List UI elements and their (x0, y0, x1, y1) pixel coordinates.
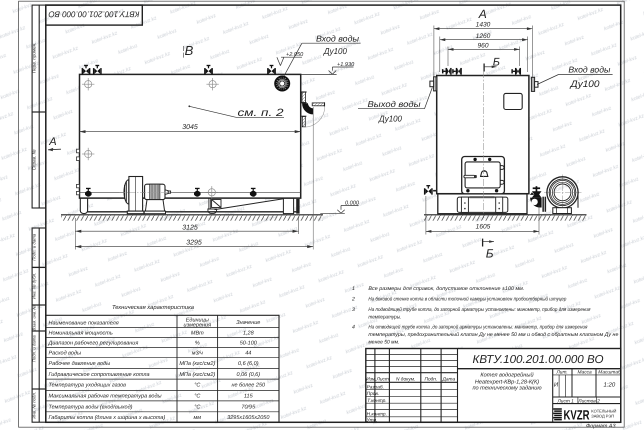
svg-text:На боковой стенке котла в обла: На боковой стенке котла в области топочн… (368, 297, 566, 303)
svg-text:Б: Б (486, 246, 494, 260)
svg-text:И: И (554, 382, 559, 389)
svg-text:В: В (185, 43, 194, 58)
svg-text:960: 960 (477, 43, 488, 50)
svg-text:Максимальная рабочая температу: Максимальная рабочая температура воды (49, 393, 162, 400)
svg-text:КВТУ.100.201.00.000 ВО: КВТУ.100.201.00.000 ВО (473, 354, 604, 366)
svg-text:3295: 3295 (186, 240, 202, 247)
svg-text:Подп. и дата: Подп. и дата (32, 233, 37, 261)
svg-text:0,6 (6,0): 0,6 (6,0) (238, 361, 259, 367)
svg-text:Масштаб: Масштаб (598, 370, 621, 376)
svg-text:КВТУ.100.201.00.000 ВО: КВТУ.100.201.00.000 ВО (48, 10, 140, 19)
svg-text:Формат А3: Формат А3 (586, 423, 616, 429)
svg-text:Лит.: Лит. (556, 370, 568, 376)
svg-text:На подводящей трубе котла, д: На подводящей трубе котла, до запорной а… (368, 307, 590, 313)
svg-text:KVZR: KVZR (564, 407, 590, 422)
svg-text:Масса: Масса (578, 370, 593, 376)
svg-text:Диапазон рабочего регулировани: Диапазон рабочего регулирования (48, 340, 139, 347)
svg-text:см. п. 2: см. п. 2 (238, 107, 284, 119)
svg-text:Разраб.: Разраб. (367, 384, 384, 390)
svg-text:°С: °С (194, 404, 200, 410)
svg-text:Подп. и дата: Подп. и дата (32, 335, 37, 363)
svg-text:Ду100: Ду100 (378, 113, 402, 123)
svg-text:Дата: Дата (442, 377, 456, 383)
svg-text:Все размеры для справок, допус: Все размеры для справок, допустимое откл… (368, 286, 524, 292)
svg-text:Н.контр.: Н.контр. (367, 412, 387, 418)
svg-text:На отводящей трубе котла ,до з: На отводящей трубе котла ,до запорной ар… (368, 325, 587, 331)
svg-text:°С: °С (194, 383, 200, 389)
svg-text:менее 50 мм.: менее 50 мм. (368, 339, 399, 345)
svg-text:температуры.: температуры. (368, 315, 401, 321)
svg-text:Габариты котла (длина х ширина: Габариты котла (длина х ширина х высота) (49, 414, 166, 421)
svg-text:Инв. № дубл.: Инв. № дубл. (32, 273, 37, 299)
svg-text:Ду100: Ду100 (569, 79, 600, 90)
svg-text:°С: °С (194, 394, 200, 400)
svg-text:3: 3 (352, 307, 355, 313)
svg-text:Вход воды: Вход воды (568, 65, 611, 75)
svg-text:Наименование показателя: Наименование показателя (49, 321, 119, 327)
svg-text:не более 250: не более 250 (232, 382, 267, 389)
svg-text:Листов 2: Листов 2 (577, 398, 600, 404)
svg-text:м3/ч: м3/ч (192, 351, 203, 357)
svg-text:Подп.: Подп. (425, 377, 438, 383)
svg-text:по техническому заданию: по техническому заданию (472, 385, 542, 392)
svg-text:2: 2 (351, 297, 355, 303)
svg-text:температуры, предохранительный: температуры, предохранительный клапан Ду… (368, 332, 618, 338)
svg-text:Т.контр.: Т.контр. (367, 398, 386, 404)
svg-text:МПа (кгс/см2): МПа (кгс/см2) (179, 372, 215, 378)
svg-text:Лист 1: Лист 1 (557, 398, 575, 404)
svg-text:+1.930: +1.930 (337, 62, 355, 68)
svg-text:Взам. инв. №: Взам. инв. № (32, 305, 37, 331)
svg-text:Гидравлическое сопротивление к: Гидравлическое сопротивление котла (49, 372, 150, 378)
svg-text:Ду100: Ду100 (323, 46, 347, 56)
svg-text:115: 115 (244, 394, 254, 400)
svg-text:+2.050: +2.050 (286, 52, 304, 58)
svg-text:1,28: 1,28 (243, 331, 255, 337)
svg-text:Котел водогрейный: Котел водогрейный (480, 372, 533, 379)
svg-text:Пров.: Пров. (367, 391, 380, 397)
svg-text:Перв. примен.: Перв. примен. (32, 43, 37, 74)
svg-text:70/95: 70/95 (241, 404, 256, 410)
svg-text:Утв.: Утв. (367, 418, 378, 424)
svg-text:0,06 (0,6): 0,06 (0,6) (237, 372, 261, 378)
svg-text:Рабочее давление воды: Рабочее давление воды (49, 360, 111, 367)
svg-text:ЗАВОД РЭП: ЗАВОД РЭП (591, 414, 614, 419)
svg-text:А: А (478, 7, 487, 21)
svg-text:1:20: 1:20 (604, 382, 616, 389)
svg-text:Инв. № подл.: Инв. № подл. (32, 392, 37, 419)
svg-text:измерения: измерения (184, 323, 212, 329)
svg-text:КОТЕЛЬНЫЙ: КОТЕЛЬНЫЙ (591, 408, 616, 413)
svg-text:Температура уходящих газов: Температура уходящих газов (49, 383, 127, 389)
svg-text:3295х1605х2050: 3295х1605х2050 (227, 415, 270, 421)
svg-text:А: А (48, 136, 56, 148)
svg-text:Номинальная мощность: Номинальная мощность (49, 331, 113, 337)
svg-text:Б: Б (493, 56, 500, 68)
svg-text:4: 4 (352, 325, 355, 331)
svg-text:1: 1 (352, 286, 355, 292)
svg-text:44: 44 (245, 351, 251, 357)
svg-text:Выход воды: Выход воды (368, 99, 422, 109)
svg-text:МВт: МВт (191, 331, 204, 337)
svg-text:МПа (кгс/см2): МПа (кгс/см2) (179, 361, 215, 367)
svg-text:1430: 1430 (476, 22, 491, 29)
svg-text:50-100: 50-100 (240, 341, 258, 347)
svg-text:3125: 3125 (182, 224, 198, 231)
svg-text:Техническая характеристика: Техническая характеристика (112, 305, 195, 311)
svg-text:1260: 1260 (476, 33, 491, 40)
svg-text:0.000: 0.000 (345, 200, 360, 206)
svg-text:мм: мм (194, 415, 202, 421)
svg-text:Heatexpert-КВр-1,28-К(К): Heatexpert-КВр-1,28-К(К) (475, 378, 539, 385)
svg-text:Значение: Значение (236, 320, 260, 326)
svg-text:Справ. №: Справ. № (32, 149, 37, 170)
svg-text:Вход воды: Вход воды (316, 34, 360, 44)
svg-text:3045: 3045 (182, 124, 198, 131)
svg-text:%: % (195, 341, 200, 347)
svg-text:N докум.: N докум. (396, 377, 415, 383)
svg-text:Расход воды: Расход воды (49, 351, 82, 357)
svg-text:1605: 1605 (476, 224, 491, 231)
svg-text:Изм.Лист: Изм.Лист (366, 377, 389, 383)
svg-text:Температура воды (вход/выход): Температура воды (вход/выход) (49, 404, 133, 410)
